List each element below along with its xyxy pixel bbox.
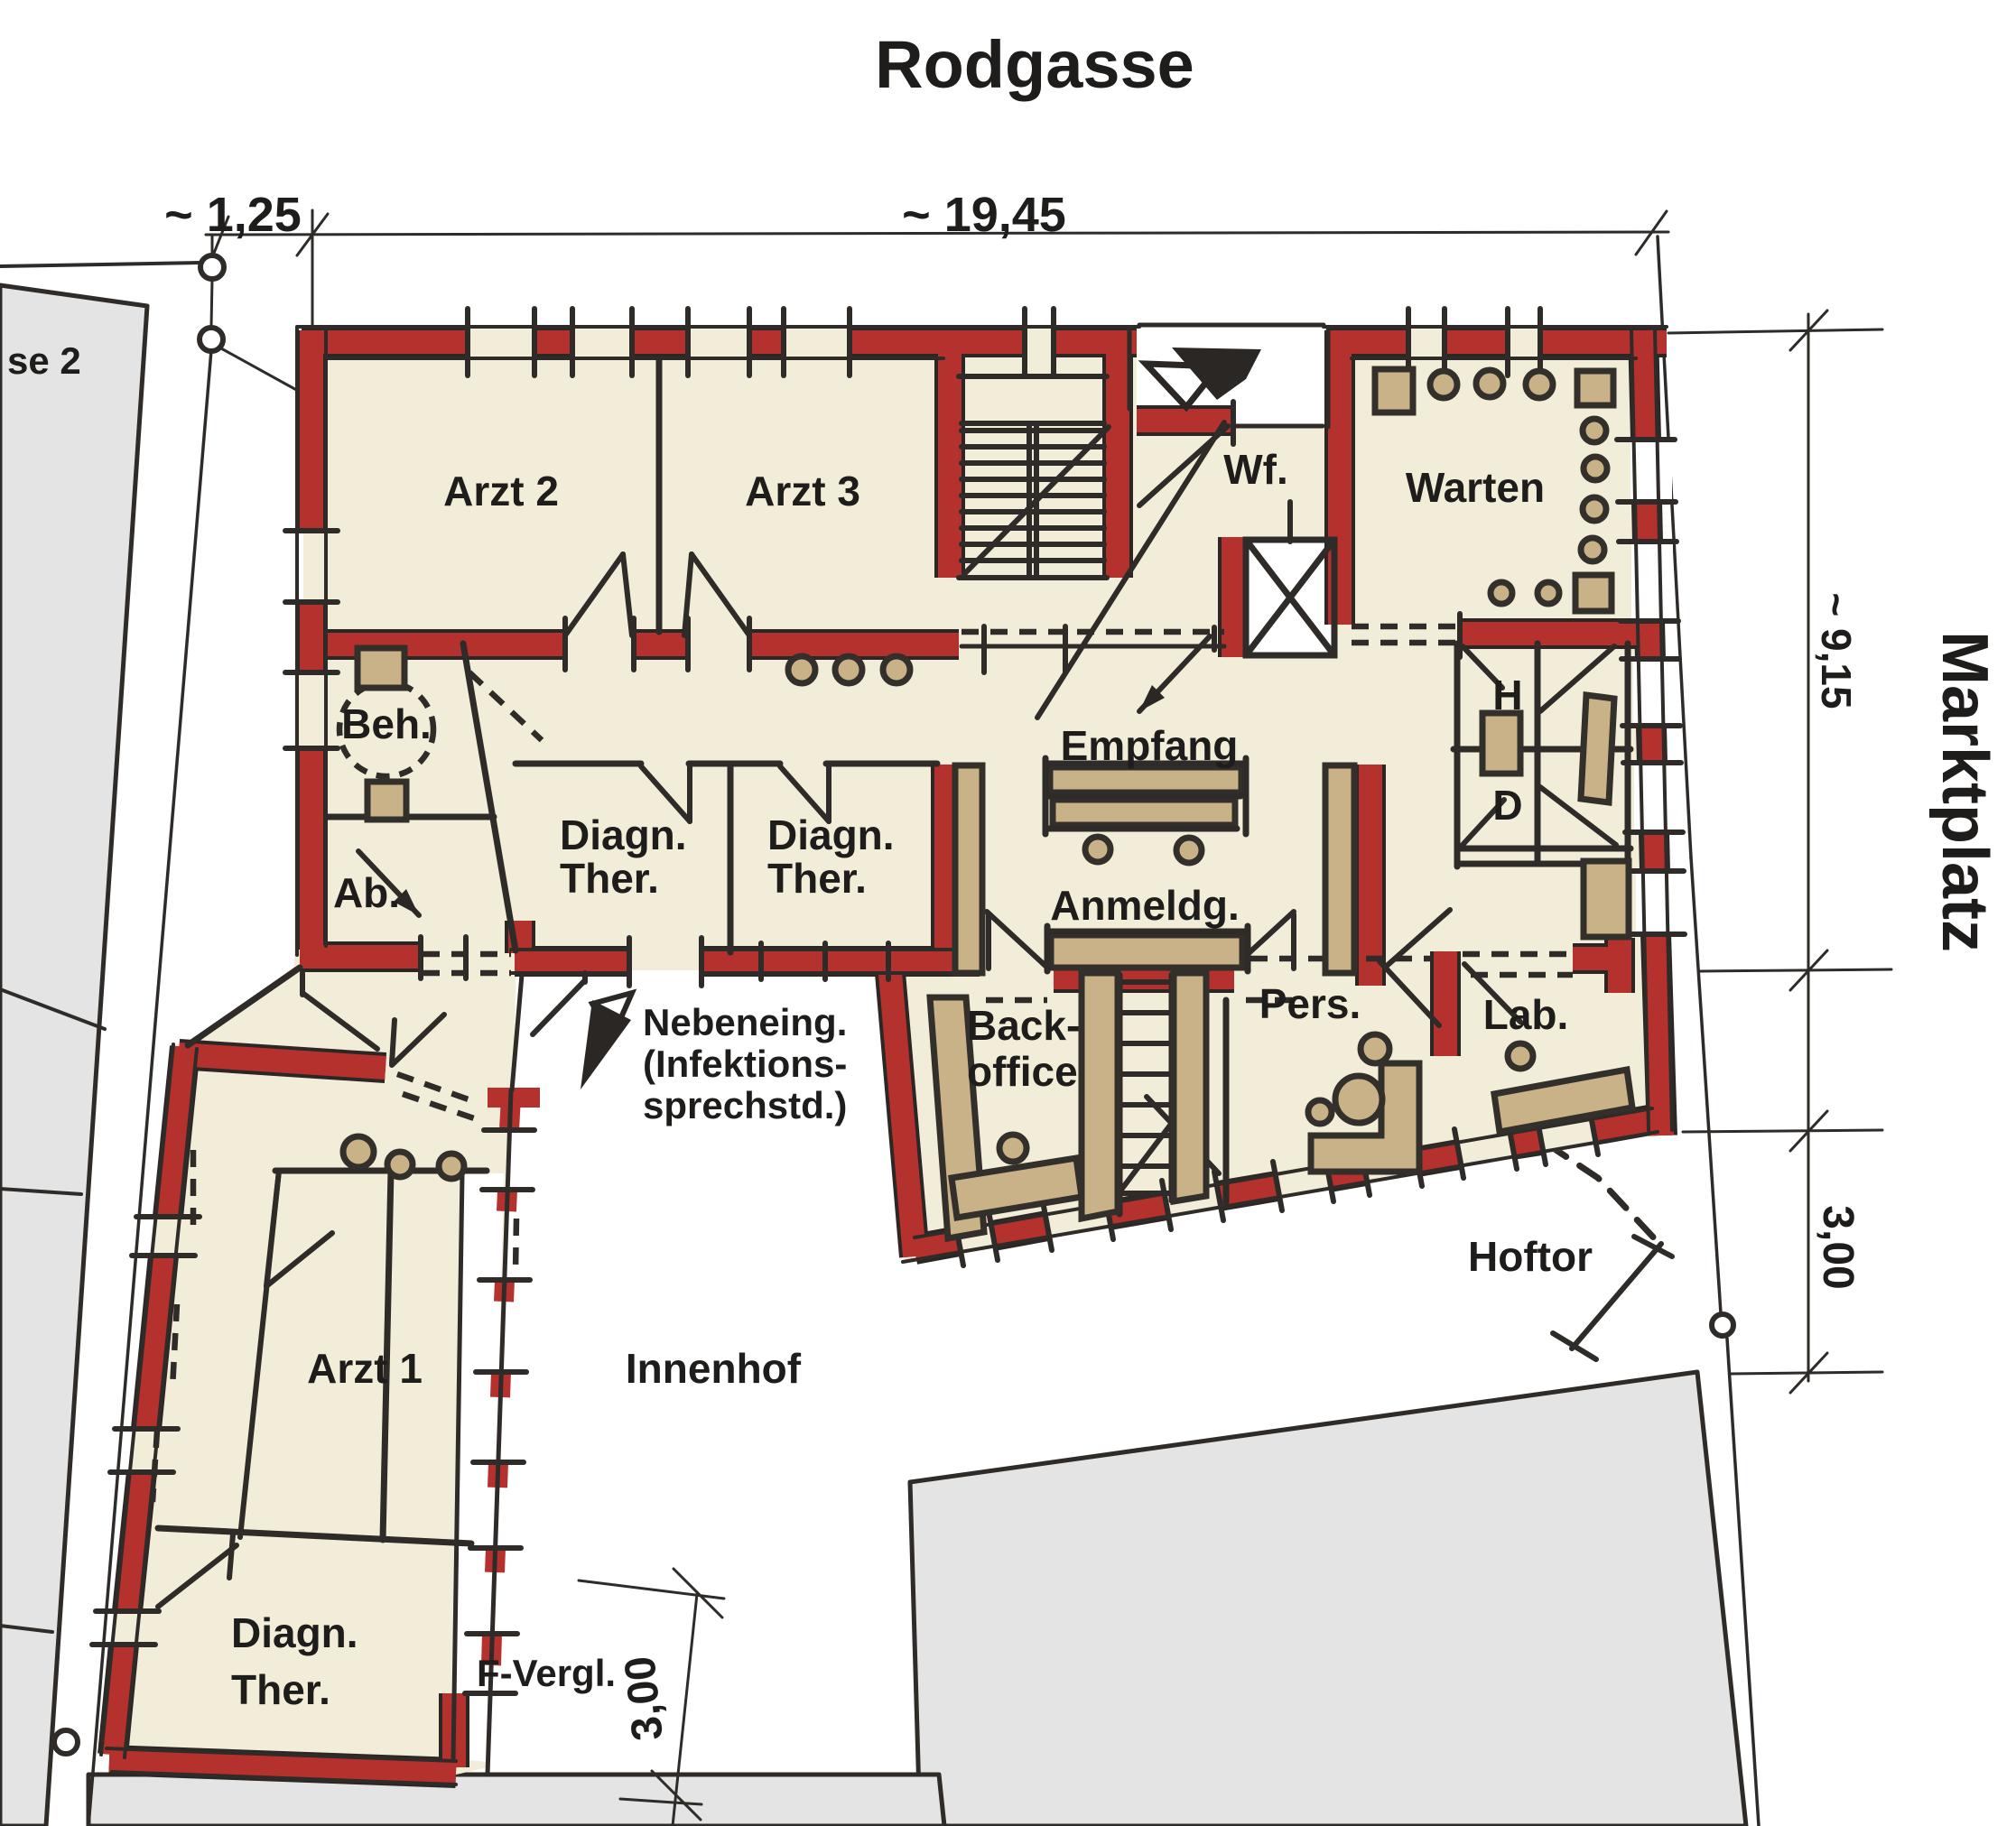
svg-text:Innenhof: Innenhof xyxy=(626,1345,802,1392)
svg-text:Ab.: Ab. xyxy=(333,869,400,916)
svg-text:Marktplatz: Marktplatz xyxy=(1928,631,2001,952)
svg-text:Back-: Back- xyxy=(967,1002,1080,1049)
svg-text:Lab.: Lab. xyxy=(1483,991,1569,1038)
svg-text:Diagn.: Diagn. xyxy=(560,811,687,858)
svg-text:Rodgasse: Rodgasse xyxy=(875,27,1194,102)
svg-text:Empfang: Empfang xyxy=(1061,722,1239,769)
svg-text:office: office xyxy=(967,1048,1078,1095)
svg-text:D: D xyxy=(1492,782,1522,829)
svg-text:Arzt 2: Arzt 2 xyxy=(443,468,559,514)
svg-text:Nebeneing.: Nebeneing. xyxy=(643,1001,847,1043)
svg-text:Ther.: Ther. xyxy=(560,855,659,902)
svg-text:Anmeldg.: Anmeldg. xyxy=(1050,882,1240,929)
svg-text:Ther.: Ther. xyxy=(767,855,867,902)
svg-text:3,00: 3,00 xyxy=(616,1654,672,1742)
svg-text:3,00: 3,00 xyxy=(1814,1205,1862,1289)
svg-text:~ 9,15: ~ 9,15 xyxy=(1813,592,1860,709)
svg-text:~ 1,25: ~ 1,25 xyxy=(164,188,302,242)
svg-text:Ther.: Ther. xyxy=(231,1666,330,1713)
svg-text:Warten: Warten xyxy=(1406,464,1545,511)
svg-text:Hoftor: Hoftor xyxy=(1468,1233,1593,1280)
svg-text:(Infektions-: (Infektions- xyxy=(643,1043,847,1085)
svg-text:Diagn.: Diagn. xyxy=(767,811,895,858)
svg-text:se 2: se 2 xyxy=(7,339,81,382)
svg-text:sprechstd.): sprechstd.) xyxy=(643,1084,847,1126)
svg-text:F-Vergl.: F-Vergl. xyxy=(477,1652,616,1694)
svg-text:Arzt 1: Arzt 1 xyxy=(307,1345,423,1392)
svg-text:Arzt 3: Arzt 3 xyxy=(745,468,860,514)
svg-text:Diagn.: Diagn. xyxy=(231,1609,358,1656)
svg-text:~ 19,45: ~ 19,45 xyxy=(902,188,1066,242)
svg-text:Beh.: Beh. xyxy=(341,700,432,747)
svg-text:H: H xyxy=(1492,672,1522,718)
svg-text:Wf.: Wf. xyxy=(1223,446,1288,493)
svg-text:Pers.: Pers. xyxy=(1259,980,1361,1027)
